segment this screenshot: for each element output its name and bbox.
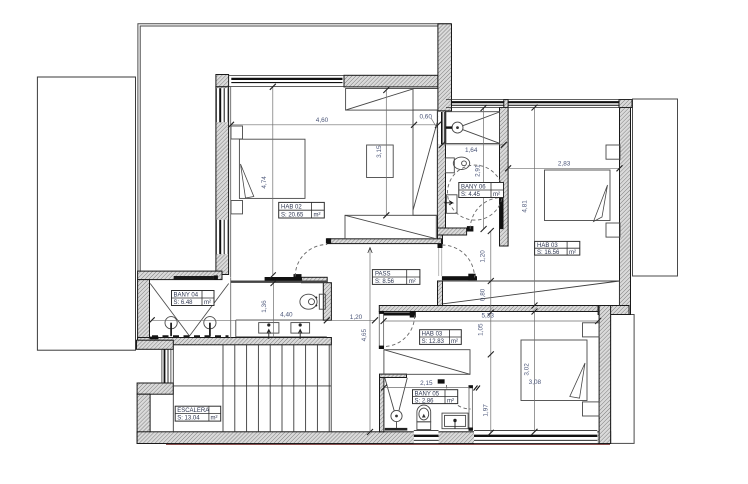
svg-text:4,65: 4,65 — [361, 329, 368, 342]
svg-text:1,97: 1,97 — [483, 404, 490, 417]
svg-text:S: 12.83: S: 12.83 — [422, 339, 445, 345]
svg-text:m²: m² — [211, 416, 218, 422]
svg-text:2,91: 2,91 — [474, 164, 481, 177]
svg-text:m²: m² — [493, 192, 500, 198]
svg-text:m²: m² — [451, 339, 458, 345]
svg-text:4,81: 4,81 — [521, 200, 528, 213]
svg-text:BANY 05: BANY 05 — [415, 391, 440, 397]
svg-text:2,83: 2,83 — [558, 161, 571, 168]
svg-text:m²: m² — [409, 279, 416, 285]
svg-text:m²: m² — [447, 399, 454, 405]
svg-text:S: 20.65: S: 20.65 — [281, 213, 304, 219]
svg-text:m²: m² — [204, 300, 211, 306]
svg-text:4,74: 4,74 — [261, 176, 268, 189]
svg-text:BANY 06: BANY 06 — [461, 185, 486, 191]
svg-text:S: 13.04: S: 13.04 — [177, 416, 200, 422]
svg-text:BANY 04: BANY 04 — [174, 293, 199, 299]
svg-text:S: 8.56: S: 8.56 — [375, 279, 395, 285]
svg-text:3,15: 3,15 — [376, 145, 383, 158]
svg-text:PASS: PASS — [375, 272, 391, 278]
svg-text:0,60: 0,60 — [419, 113, 432, 120]
svg-text:m²: m² — [569, 250, 576, 256]
svg-text:S: 6.48: S: 6.48 — [174, 300, 194, 306]
svg-text:1,36: 1,36 — [261, 300, 268, 313]
svg-text:3,02: 3,02 — [524, 363, 531, 376]
svg-text:S: 4.45: S: 4.45 — [461, 192, 481, 198]
svg-text:1,20: 1,20 — [350, 314, 363, 321]
svg-text:4,60: 4,60 — [316, 117, 329, 124]
svg-text:m²: m² — [314, 213, 321, 219]
svg-text:HAB 02: HAB 02 — [281, 205, 302, 211]
svg-text:HAB 03: HAB 03 — [422, 332, 443, 338]
svg-text:HAB 03: HAB 03 — [537, 243, 558, 249]
svg-text:3,08: 3,08 — [529, 379, 542, 386]
svg-text:S: 16.56: S: 16.56 — [537, 250, 560, 256]
svg-text:0,80: 0,80 — [479, 288, 486, 301]
svg-text:1,64: 1,64 — [465, 147, 478, 154]
svg-text:ESCALERA: ESCALERA — [177, 408, 209, 414]
svg-text:2,15: 2,15 — [420, 380, 433, 387]
svg-text:4,40: 4,40 — [280, 311, 293, 318]
svg-text:S: 2.86: S: 2.86 — [415, 399, 435, 405]
svg-text:1,20: 1,20 — [479, 250, 486, 263]
svg-text:1,05: 1,05 — [478, 323, 485, 336]
svg-text:5,33: 5,33 — [481, 312, 494, 319]
